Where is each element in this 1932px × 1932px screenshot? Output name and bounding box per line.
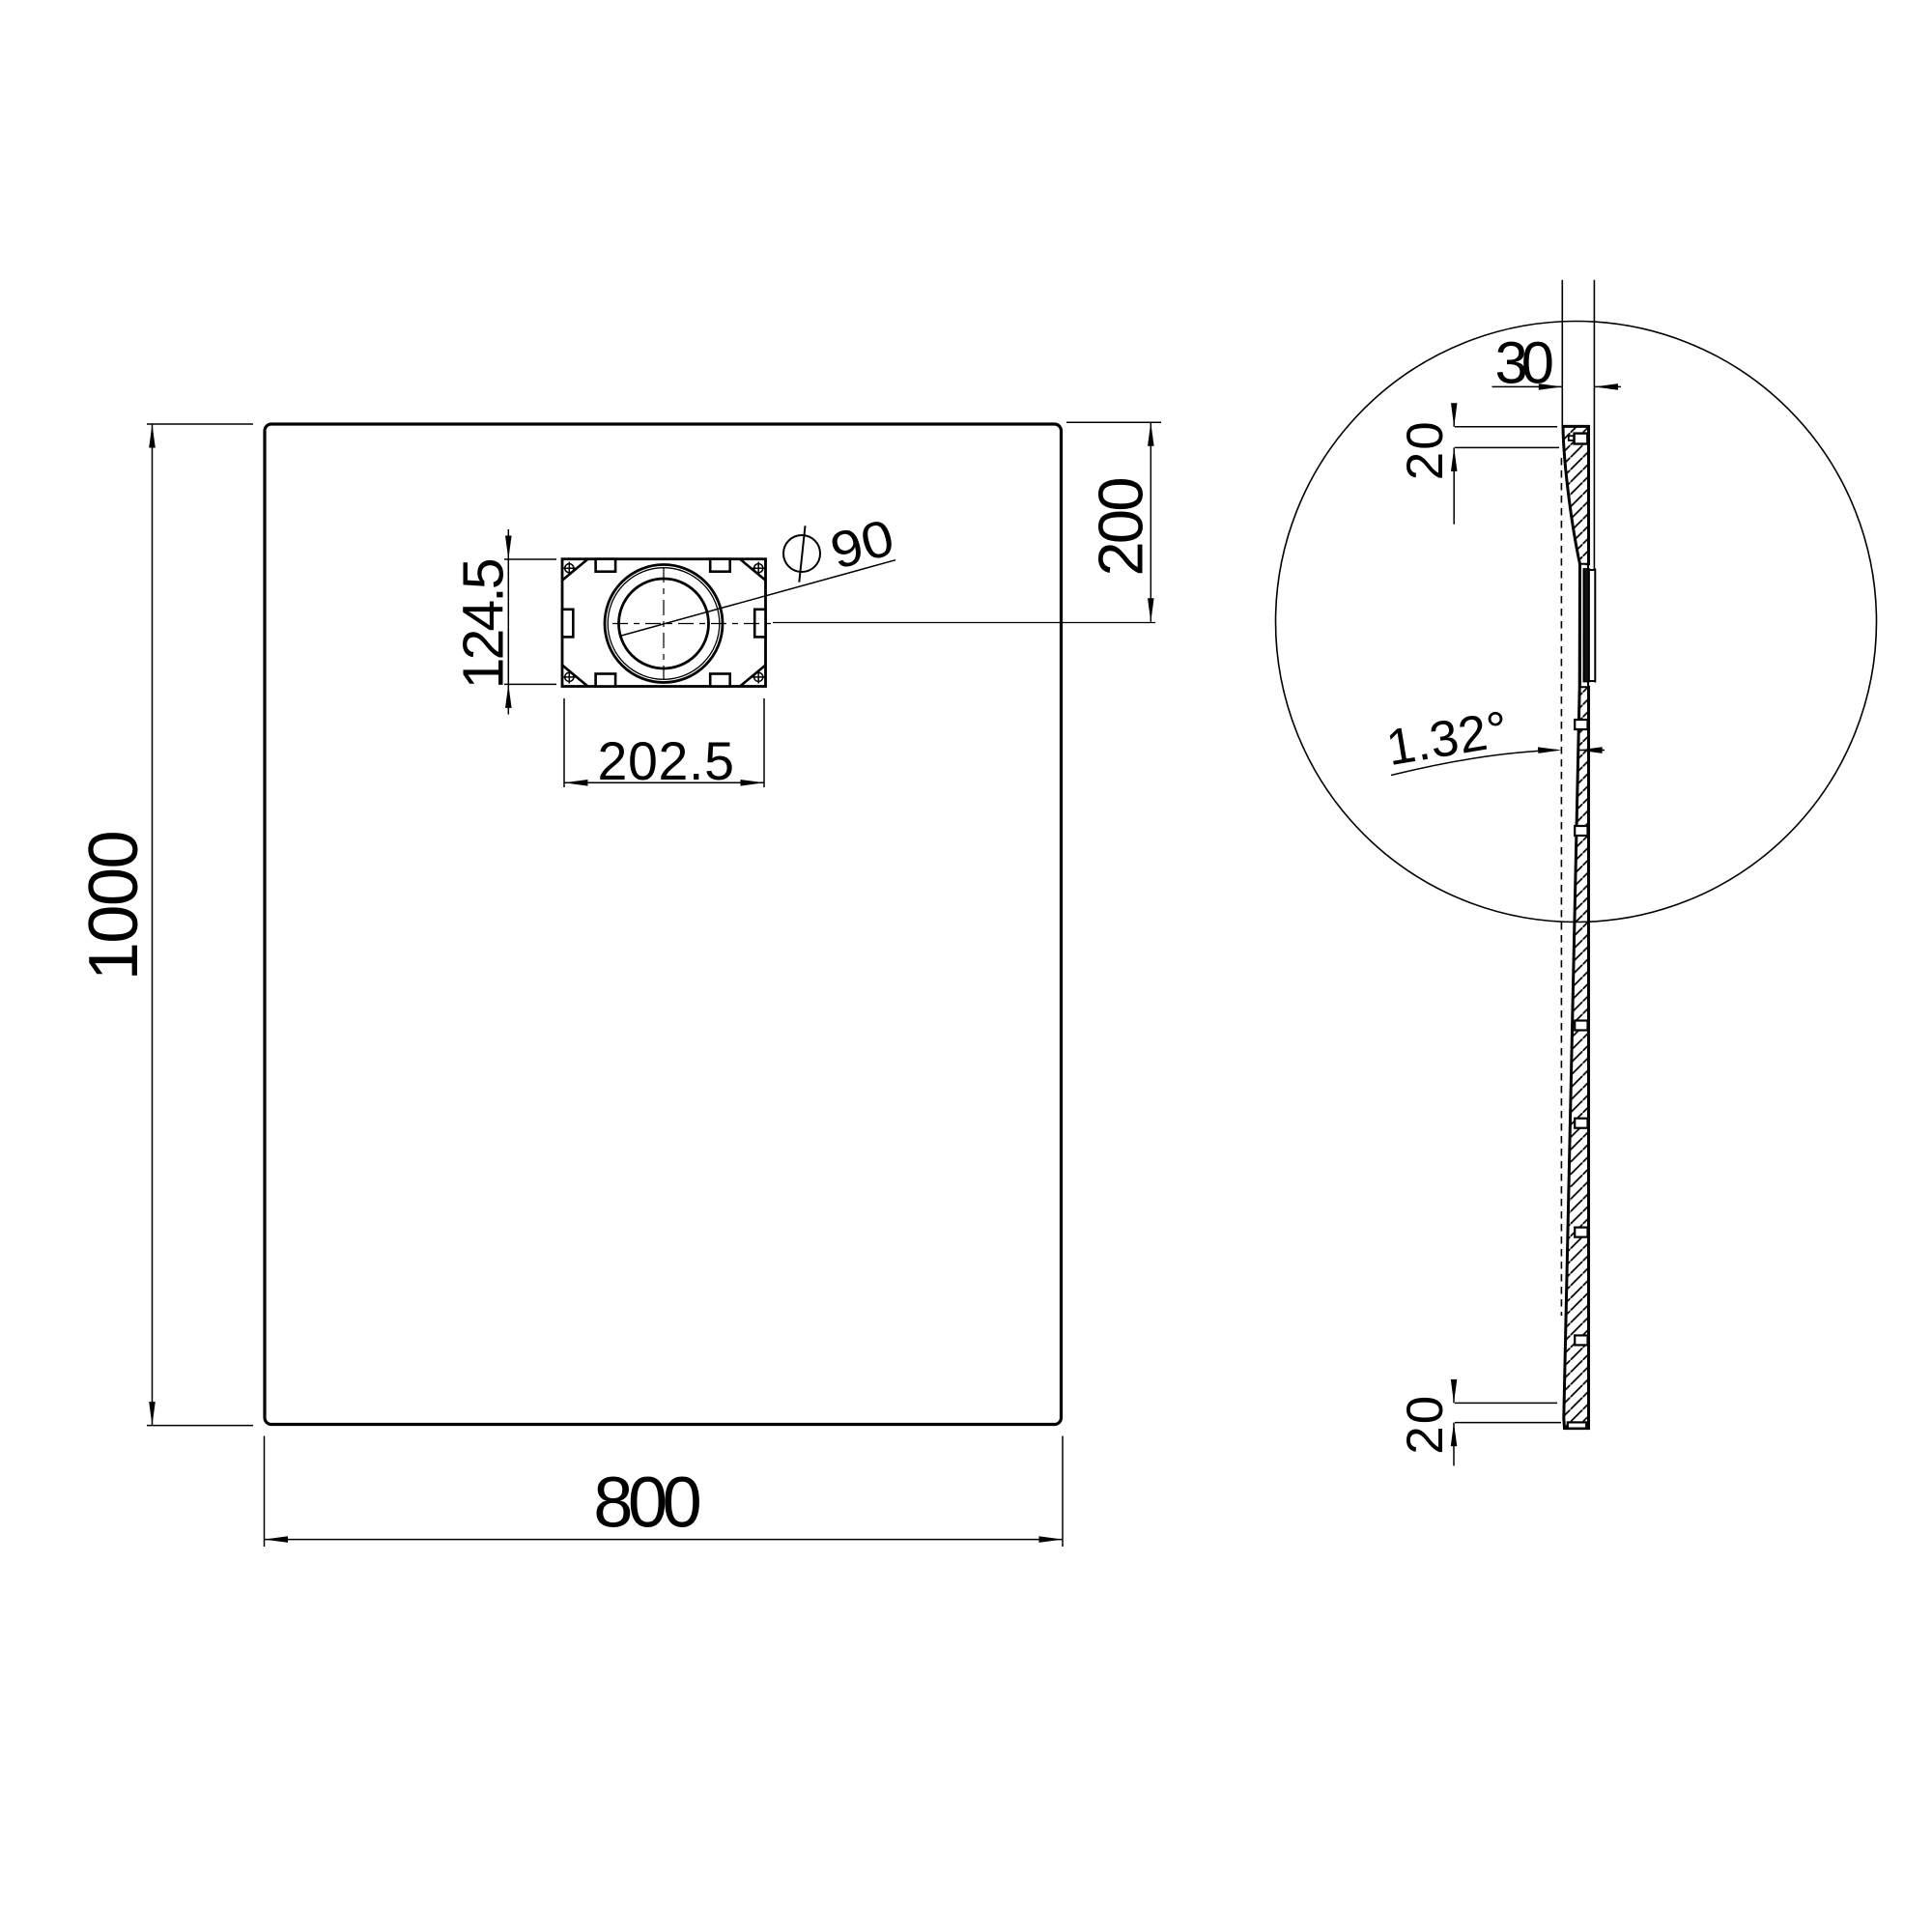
svg-text:30: 30 bbox=[1494, 330, 1554, 397]
svg-text:124.5: 124.5 bbox=[452, 557, 516, 689]
svg-text:202.5: 202.5 bbox=[597, 731, 734, 791]
svg-text:1000: 1000 bbox=[75, 830, 153, 980]
svg-text:200: 200 bbox=[1086, 477, 1156, 577]
svg-text:800: 800 bbox=[593, 1463, 702, 1543]
